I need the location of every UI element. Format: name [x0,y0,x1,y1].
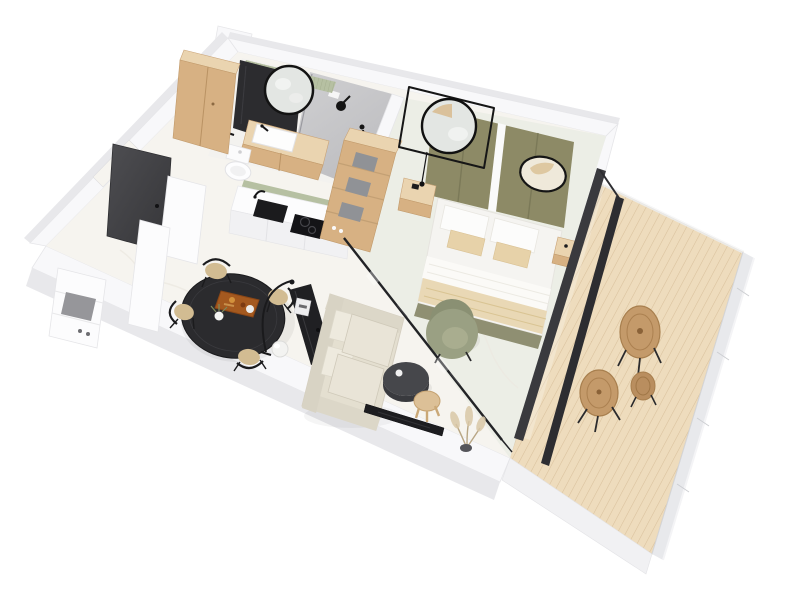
pendant-light [419,181,424,186]
console-item [316,328,320,332]
round-mirror [265,66,313,114]
plate [246,305,254,313]
door-handle [155,204,159,208]
sphere-floor-lamp [272,341,288,357]
shoe-shelf [49,268,106,348]
coffee-machine [294,298,311,316]
plant-vase [460,444,472,452]
shoe [78,329,82,333]
apartment-3d-floorplan [0,0,800,600]
shoe [339,229,343,233]
shoe [86,332,90,336]
flush-button [238,150,242,154]
shoe [332,226,336,230]
cabinet-handle [212,103,215,106]
nightstand-item [564,244,568,248]
floorplan-canvas [0,0,800,600]
armchair-cushion [442,327,468,349]
cup [396,370,403,377]
